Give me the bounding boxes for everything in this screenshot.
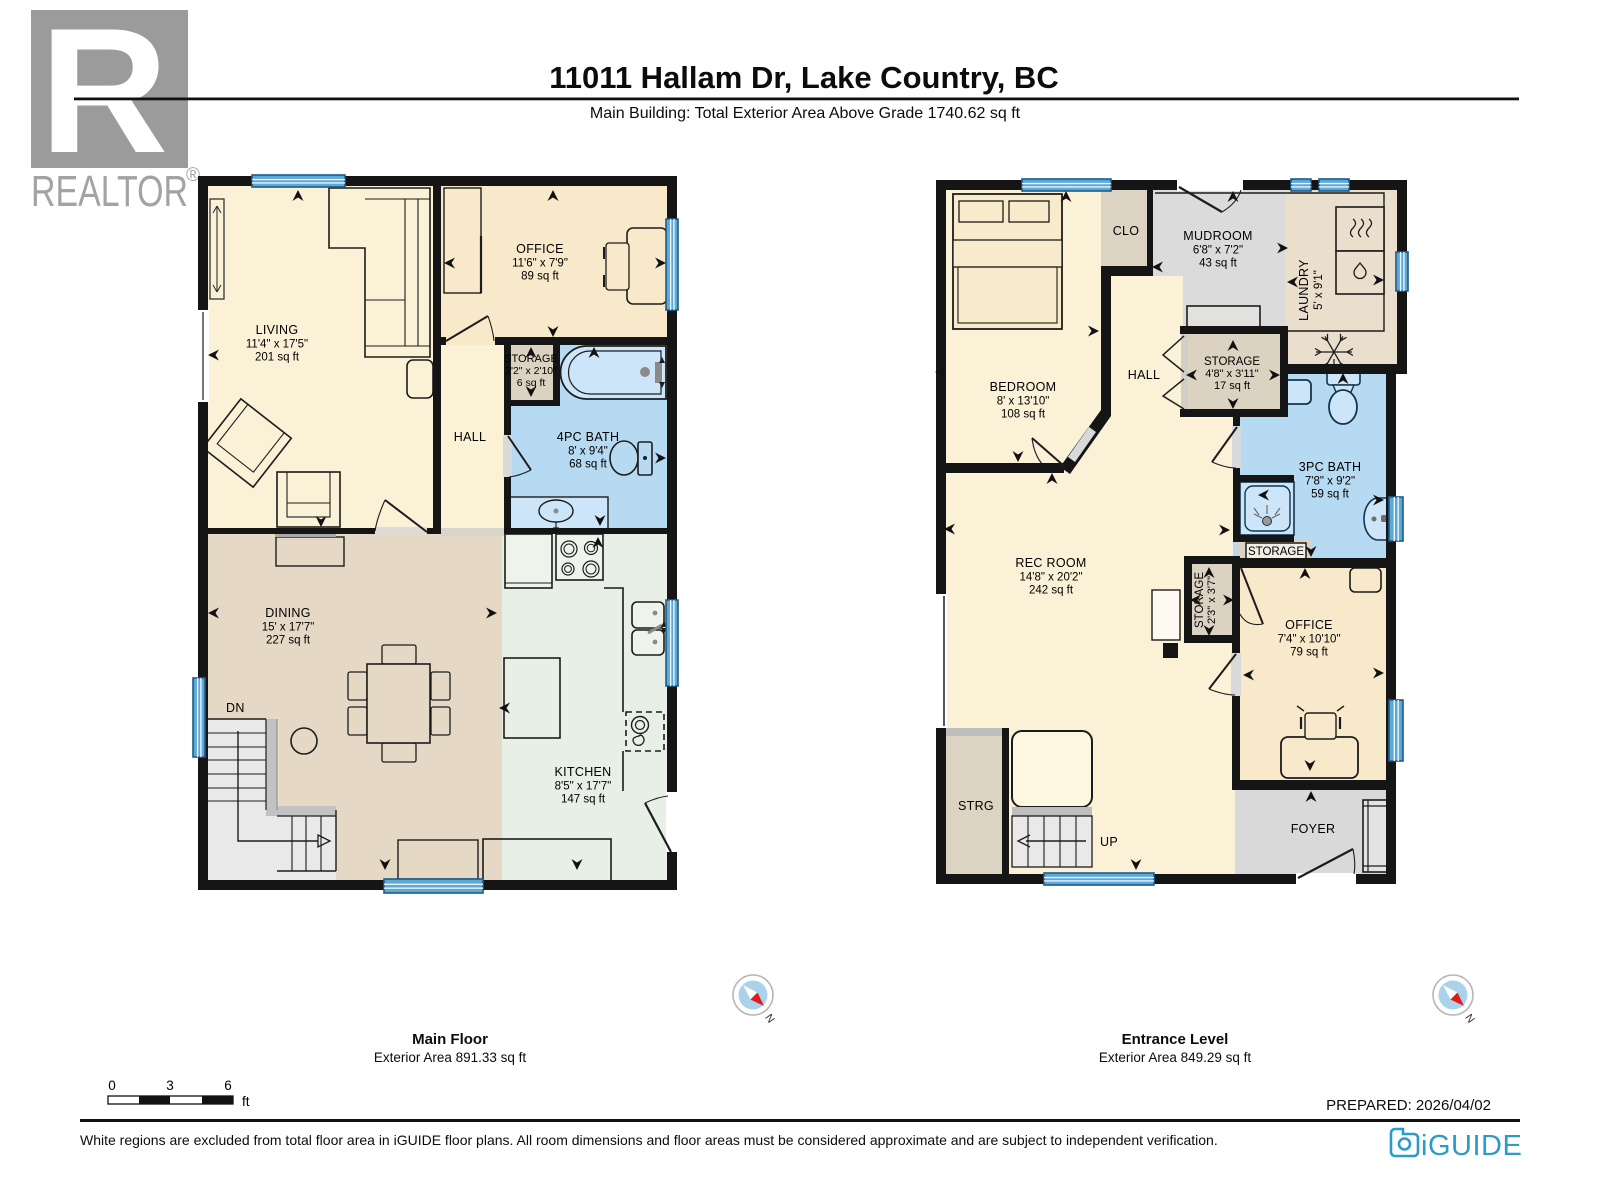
svg-text:White regions are excluded fro: White regions are excluded from total fl… [80,1132,1218,1148]
svg-text:68 sq ft: 68 sq ft [569,459,608,471]
svg-text:®: ® [186,165,200,186]
svg-text:ft: ft [242,1094,250,1109]
svg-text:0: 0 [108,1078,116,1093]
svg-text:11011 Hallam Dr, Lake Country,: 11011 Hallam Dr, Lake Country, BC [549,60,1058,95]
svg-text:6: 6 [224,1078,232,1093]
svg-text:STORAGE: STORAGE [1204,356,1260,368]
svg-text:STRG: STRG [958,799,994,813]
svg-text:UP: UP [1100,835,1118,849]
svg-text:2'2" x 2'10": 2'2" x 2'10" [505,365,557,377]
svg-text:79 sq ft: 79 sq ft [1290,647,1329,659]
svg-text:KITCHEN: KITCHEN [555,765,612,779]
svg-text:CLO: CLO [1113,224,1140,238]
svg-text:Main Building: Total Exterior: Main Building: Total Exterior Area Above… [590,105,1021,122]
svg-text:89 sq ft: 89 sq ft [521,271,560,283]
svg-text:6'8" x 7'2": 6'8" x 7'2" [1193,245,1243,257]
svg-text:OFFICE: OFFICE [1285,618,1333,632]
svg-text:5' x 9'1": 5' x 9'1" [1313,270,1325,310]
svg-text:FOYER: FOYER [1291,822,1336,836]
svg-text:4'8" x 3'11": 4'8" x 3'11" [1205,368,1258,380]
svg-text:4PC BATH: 4PC BATH [557,430,620,444]
svg-text:LAUNDRY: LAUNDRY [1297,259,1311,321]
svg-text:HALL: HALL [1128,368,1160,382]
svg-text:7'4" x 10'10": 7'4" x 10'10" [1277,634,1340,646]
svg-text:HALL: HALL [454,430,486,444]
svg-text:Exterior Area 891.33 sq ft: Exterior Area 891.33 sq ft [374,1050,527,1065]
svg-text:15' x 17'7": 15' x 17'7" [262,622,315,634]
svg-text:Main Floor: Main Floor [412,1031,488,1048]
svg-text:8'5" x 17'7": 8'5" x 17'7" [555,781,612,793]
svg-text:6 sq ft: 6 sq ft [517,377,546,389]
svg-text:STORAGE: STORAGE [1248,546,1304,558]
svg-text:17 sq ft: 17 sq ft [1214,380,1250,392]
svg-text:PREPARED: 2026/04/02: PREPARED: 2026/04/02 [1326,1097,1491,1114]
svg-text:LIVING: LIVING [256,323,299,337]
svg-text:REALTOR: REALTOR [31,167,188,216]
svg-text:11'6" x 7'9": 11'6" x 7'9" [512,258,568,270]
svg-text:DINING: DINING [265,606,311,620]
svg-text:7'8" x 9'2": 7'8" x 9'2" [1305,476,1355,488]
svg-text:108 sq ft: 108 sq ft [1001,409,1046,421]
svg-text:REC ROOM: REC ROOM [1015,556,1086,570]
svg-text:227 sq ft: 227 sq ft [266,635,311,647]
svg-text:BEDROOM: BEDROOM [990,380,1057,394]
svg-text:14'8" x 20'2": 14'8" x 20'2" [1019,572,1082,584]
svg-text:OFFICE: OFFICE [516,242,564,256]
svg-text:3: 3 [166,1078,174,1093]
svg-text:Exterior Area 849.29 sq ft: Exterior Area 849.29 sq ft [1099,1050,1252,1065]
svg-text:59 sq ft: 59 sq ft [1311,489,1350,501]
svg-text:3PC BATH: 3PC BATH [1299,460,1362,474]
svg-text:2'3" x 3'7": 2'3" x 3'7" [1206,576,1218,624]
svg-text:DN: DN [226,701,245,715]
svg-text:8' x 9'4": 8' x 9'4" [568,446,608,458]
svg-text:43 sq ft: 43 sq ft [1199,258,1238,270]
svg-text:201 sq ft: 201 sq ft [255,352,300,364]
svg-text:8' x 13'10": 8' x 13'10" [997,396,1050,408]
svg-text:147 sq ft: 147 sq ft [561,794,606,806]
svg-text:STORAGE: STORAGE [504,353,558,365]
svg-text:MUDROOM: MUDROOM [1183,229,1252,243]
svg-text:242 sq ft: 242 sq ft [1029,585,1074,597]
svg-text:R: R [40,0,169,190]
svg-text:iGUIDE: iGUIDE [1421,1130,1522,1162]
svg-text:11'4" x 17'5": 11'4" x 17'5" [246,339,308,351]
svg-text:Entrance Level: Entrance Level [1122,1031,1229,1048]
